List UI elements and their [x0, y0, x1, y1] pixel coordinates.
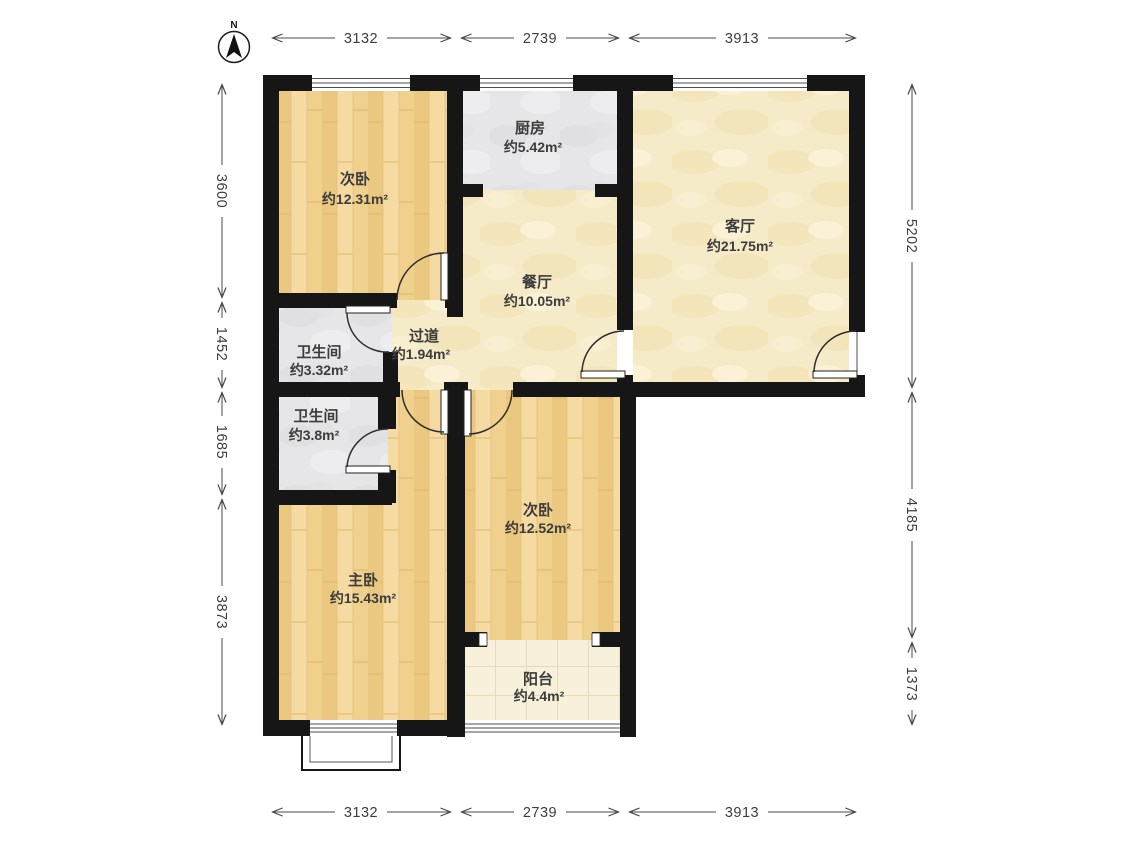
- floor-master: [271, 497, 456, 728]
- balcony-jamb-cap: [479, 633, 487, 646]
- wall-segment: [447, 184, 483, 197]
- balcony-jamb-cap: [592, 633, 600, 646]
- dim-right-3: 1373: [903, 667, 919, 701]
- room-name-hallway: 过道: [409, 327, 439, 345]
- room-name-bath-upper: 卫生间: [296, 343, 341, 361]
- dim-left-3: 1685: [213, 425, 229, 459]
- room-area-bedroom-top: 约12.31m²: [322, 191, 388, 207]
- room-name-balcony: 阳台: [523, 670, 553, 688]
- wall-segment: [513, 382, 865, 397]
- wall-segment: [447, 382, 465, 737]
- entry-door-gap: [849, 332, 865, 375]
- north-compass: N: [219, 20, 250, 63]
- room-area-bath-upper: 约3.32m²: [290, 362, 349, 378]
- wall-segment: [410, 75, 480, 91]
- dim-top-3: 3913: [725, 31, 759, 47]
- window-living: [673, 75, 807, 91]
- floorplan-svg: 次卧 约12.31m² 厨房 约5.42m² 客厅 约21.75m² 餐厅 约1…: [0, 0, 1125, 844]
- dim-bottom-2: 2739: [523, 805, 557, 821]
- room-name-bedroom-bottom: 次卧: [523, 501, 553, 519]
- window-kitchen: [480, 75, 573, 91]
- room-area-living: 约21.75m²: [707, 238, 773, 254]
- wall-segment: [620, 382, 636, 737]
- wall-segment: [263, 490, 392, 505]
- room-area-balcony: 约4.4m²: [514, 688, 565, 704]
- dim-right-2: 4185: [903, 498, 919, 532]
- bay-window-master: [302, 720, 400, 770]
- room-name-kitchen: 厨房: [515, 119, 545, 137]
- dim-bottom-3: 3913: [725, 805, 759, 821]
- dim-left-4: 3873: [213, 595, 229, 629]
- room-area-master: 约15.43m²: [330, 590, 396, 606]
- room-name-bedroom-top: 次卧: [340, 170, 370, 188]
- dim-left-1: 3600: [213, 174, 229, 208]
- dim-right-1: 5202: [903, 219, 919, 253]
- room-name-dining: 餐厅: [522, 273, 552, 291]
- bay-window-body: [302, 736, 400, 770]
- dim-bottom-1: 3132: [344, 805, 378, 821]
- room-area-bath-lower: 约3.8m²: [289, 427, 340, 443]
- wall-segment: [617, 75, 633, 330]
- dining-door-gap: [617, 330, 633, 375]
- floorplan-canvas: 次卧 约12.31m² 厨房 约5.42m² 客厅 约21.75m² 餐厅 约1…: [0, 0, 1125, 844]
- room-name-living: 客厅: [724, 217, 755, 235]
- room-name-master: 主卧: [348, 571, 378, 589]
- room-area-kitchen: 约5.42m²: [504, 139, 563, 155]
- wall-segment: [595, 184, 633, 197]
- wall-segment: [263, 75, 279, 736]
- room-name-bath-lower: 卫生间: [293, 407, 338, 425]
- room-area-hallway: 约1.94m²: [392, 346, 451, 362]
- wall-segment: [378, 397, 396, 429]
- dim-left-2: 1452: [213, 327, 229, 361]
- room-area-bedroom-bottom: 约12.52m²: [505, 520, 571, 536]
- wall-segment: [263, 720, 310, 736]
- north-label: N: [230, 20, 237, 31]
- window-bedroom-top: [312, 75, 410, 91]
- floor-bath-lower: [271, 390, 388, 503]
- dim-top-1: 3132: [344, 31, 378, 47]
- wall-segment: [397, 720, 465, 736]
- room-area-dining: 约10.05m²: [504, 293, 570, 309]
- wall-segment: [849, 75, 865, 332]
- window-balcony: [465, 720, 620, 736]
- dim-top-2: 2739: [523, 31, 557, 47]
- wall-segment: [263, 382, 400, 397]
- floor-living: [623, 83, 857, 390]
